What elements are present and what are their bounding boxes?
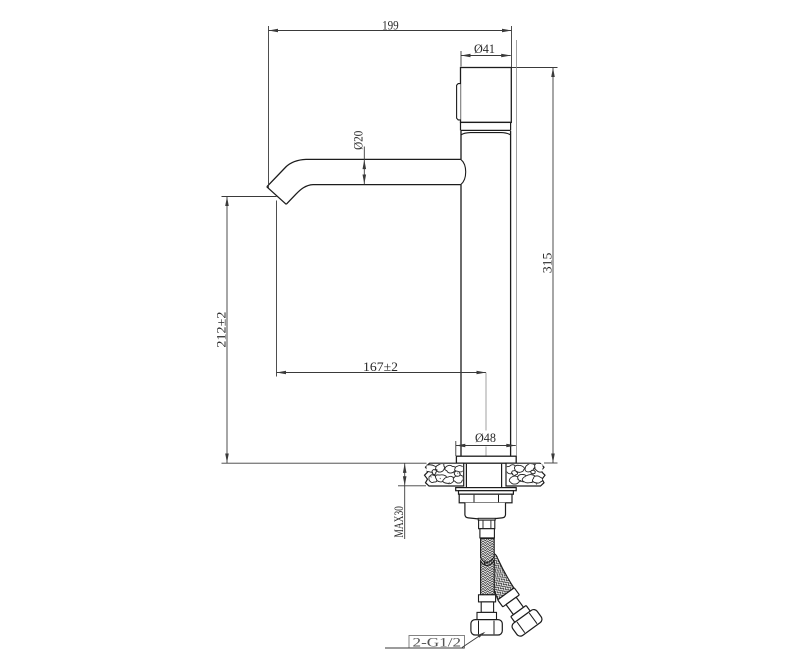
svg-text:167±2: 167±2 (363, 359, 398, 374)
svg-text:MAX30: MAX30 (392, 506, 406, 537)
svg-text:Ø41: Ø41 (474, 42, 495, 56)
svg-text:212±2: 212±2 (214, 312, 229, 348)
svg-text:199: 199 (382, 18, 399, 32)
svg-text:2-G1/2: 2-G1/2 (413, 635, 462, 649)
svg-text:Ø48: Ø48 (475, 431, 496, 445)
svg-text:Ø20: Ø20 (351, 131, 365, 150)
svg-text:315: 315 (540, 253, 555, 274)
